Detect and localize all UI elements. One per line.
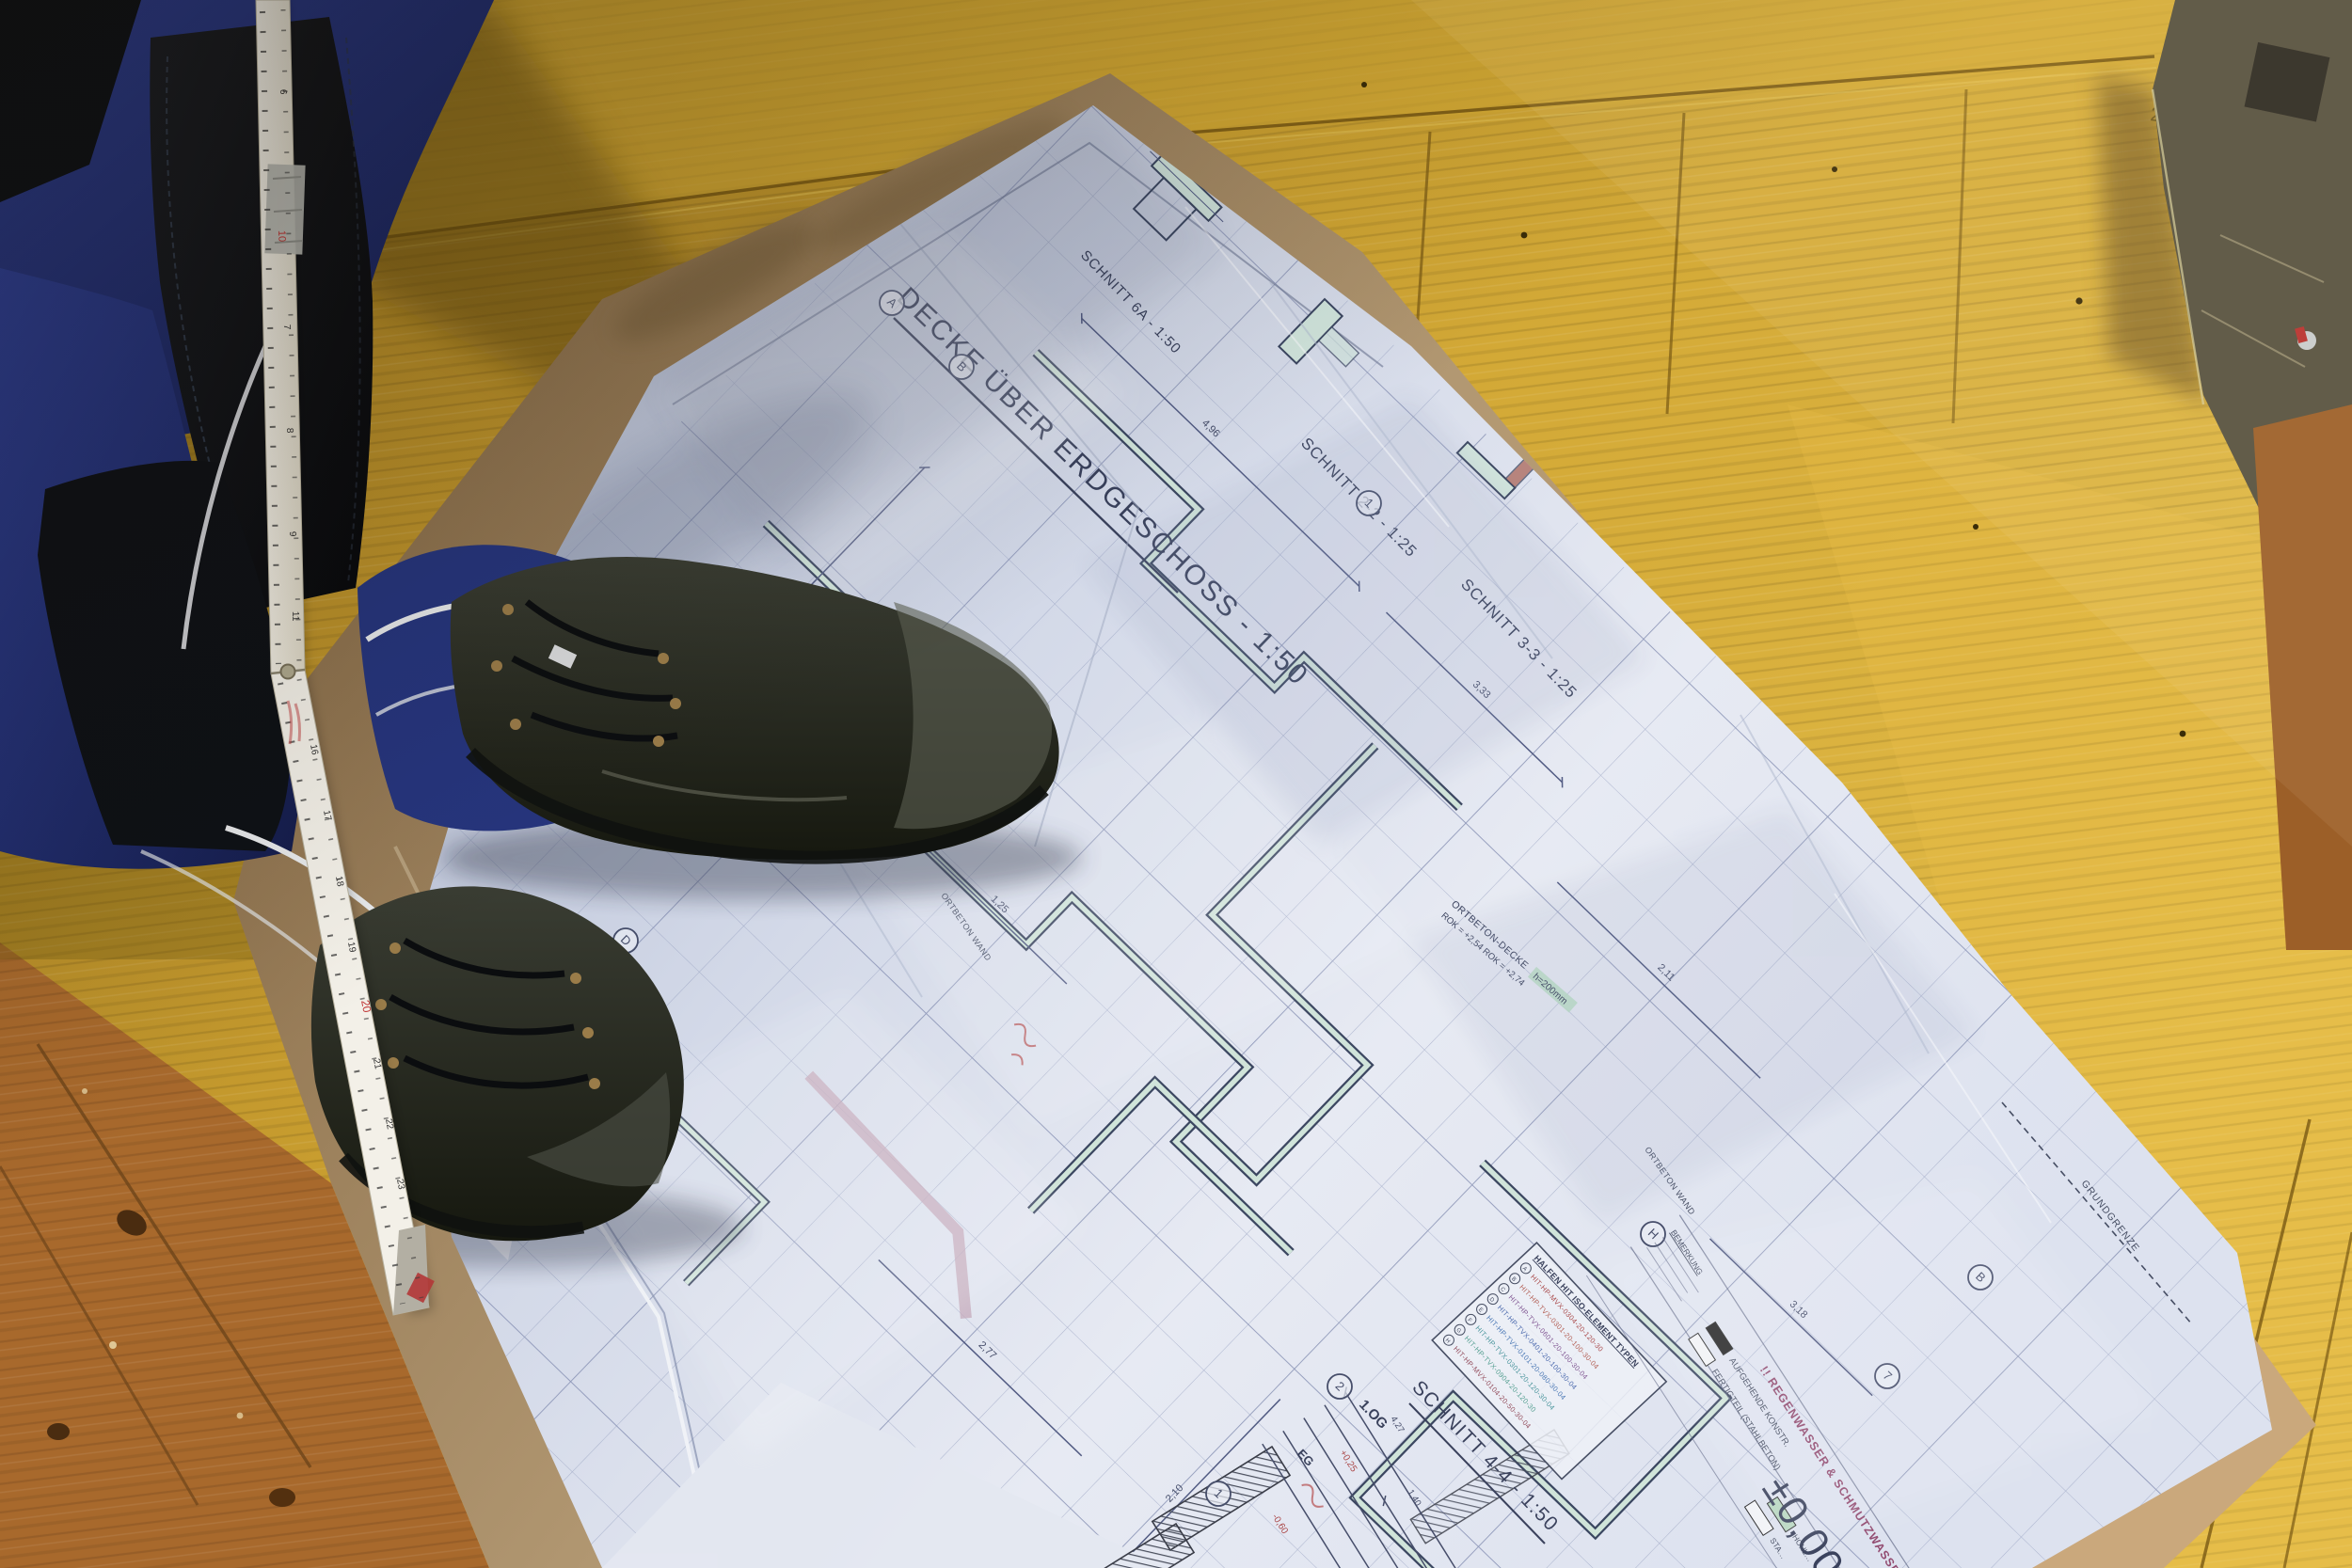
photo-canvas: 22140202 [0,0,2352,1568]
construction-site-photo: 22140202 [0,0,2352,1568]
